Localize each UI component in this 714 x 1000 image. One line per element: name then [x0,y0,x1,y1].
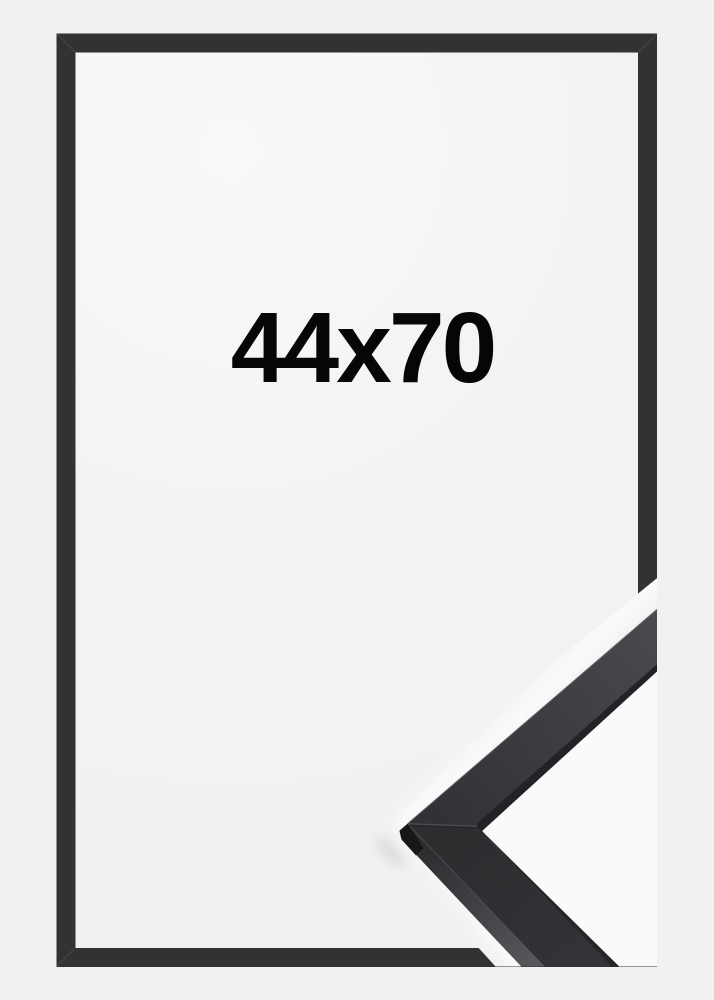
svg-text:44x70: 44x70 [231,292,495,404]
